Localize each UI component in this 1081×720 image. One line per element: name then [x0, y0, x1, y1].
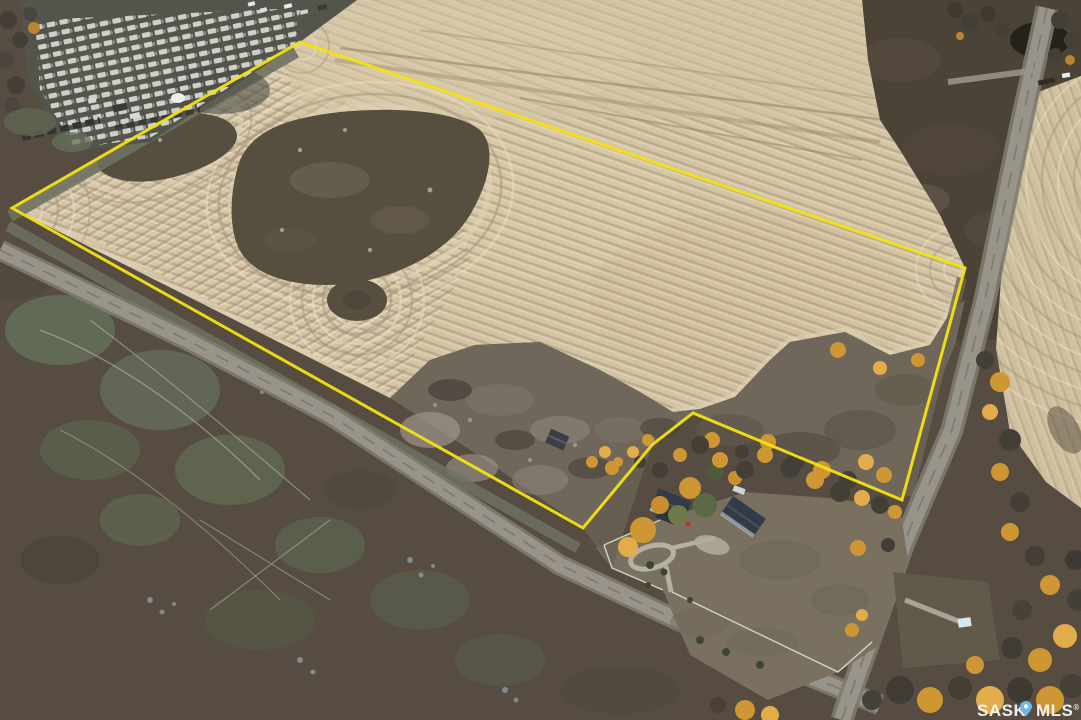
roadside-yard [893, 572, 1000, 668]
svg-text:SASK: SASK [977, 701, 1026, 720]
watermark-sask: SASK [977, 701, 1026, 720]
watermark-registered: ® [1073, 703, 1079, 712]
white-dome-tent [171, 93, 185, 103]
white-shed [958, 617, 972, 628]
aerial-photo-canvas: SASK MLS® [0, 0, 1081, 720]
watermark-mls: MLS [1036, 701, 1073, 720]
red-shrub [685, 521, 690, 526]
svg-text:MLS®: MLS® [1036, 701, 1080, 720]
aerial-photo: SASK MLS® [0, 0, 1081, 720]
